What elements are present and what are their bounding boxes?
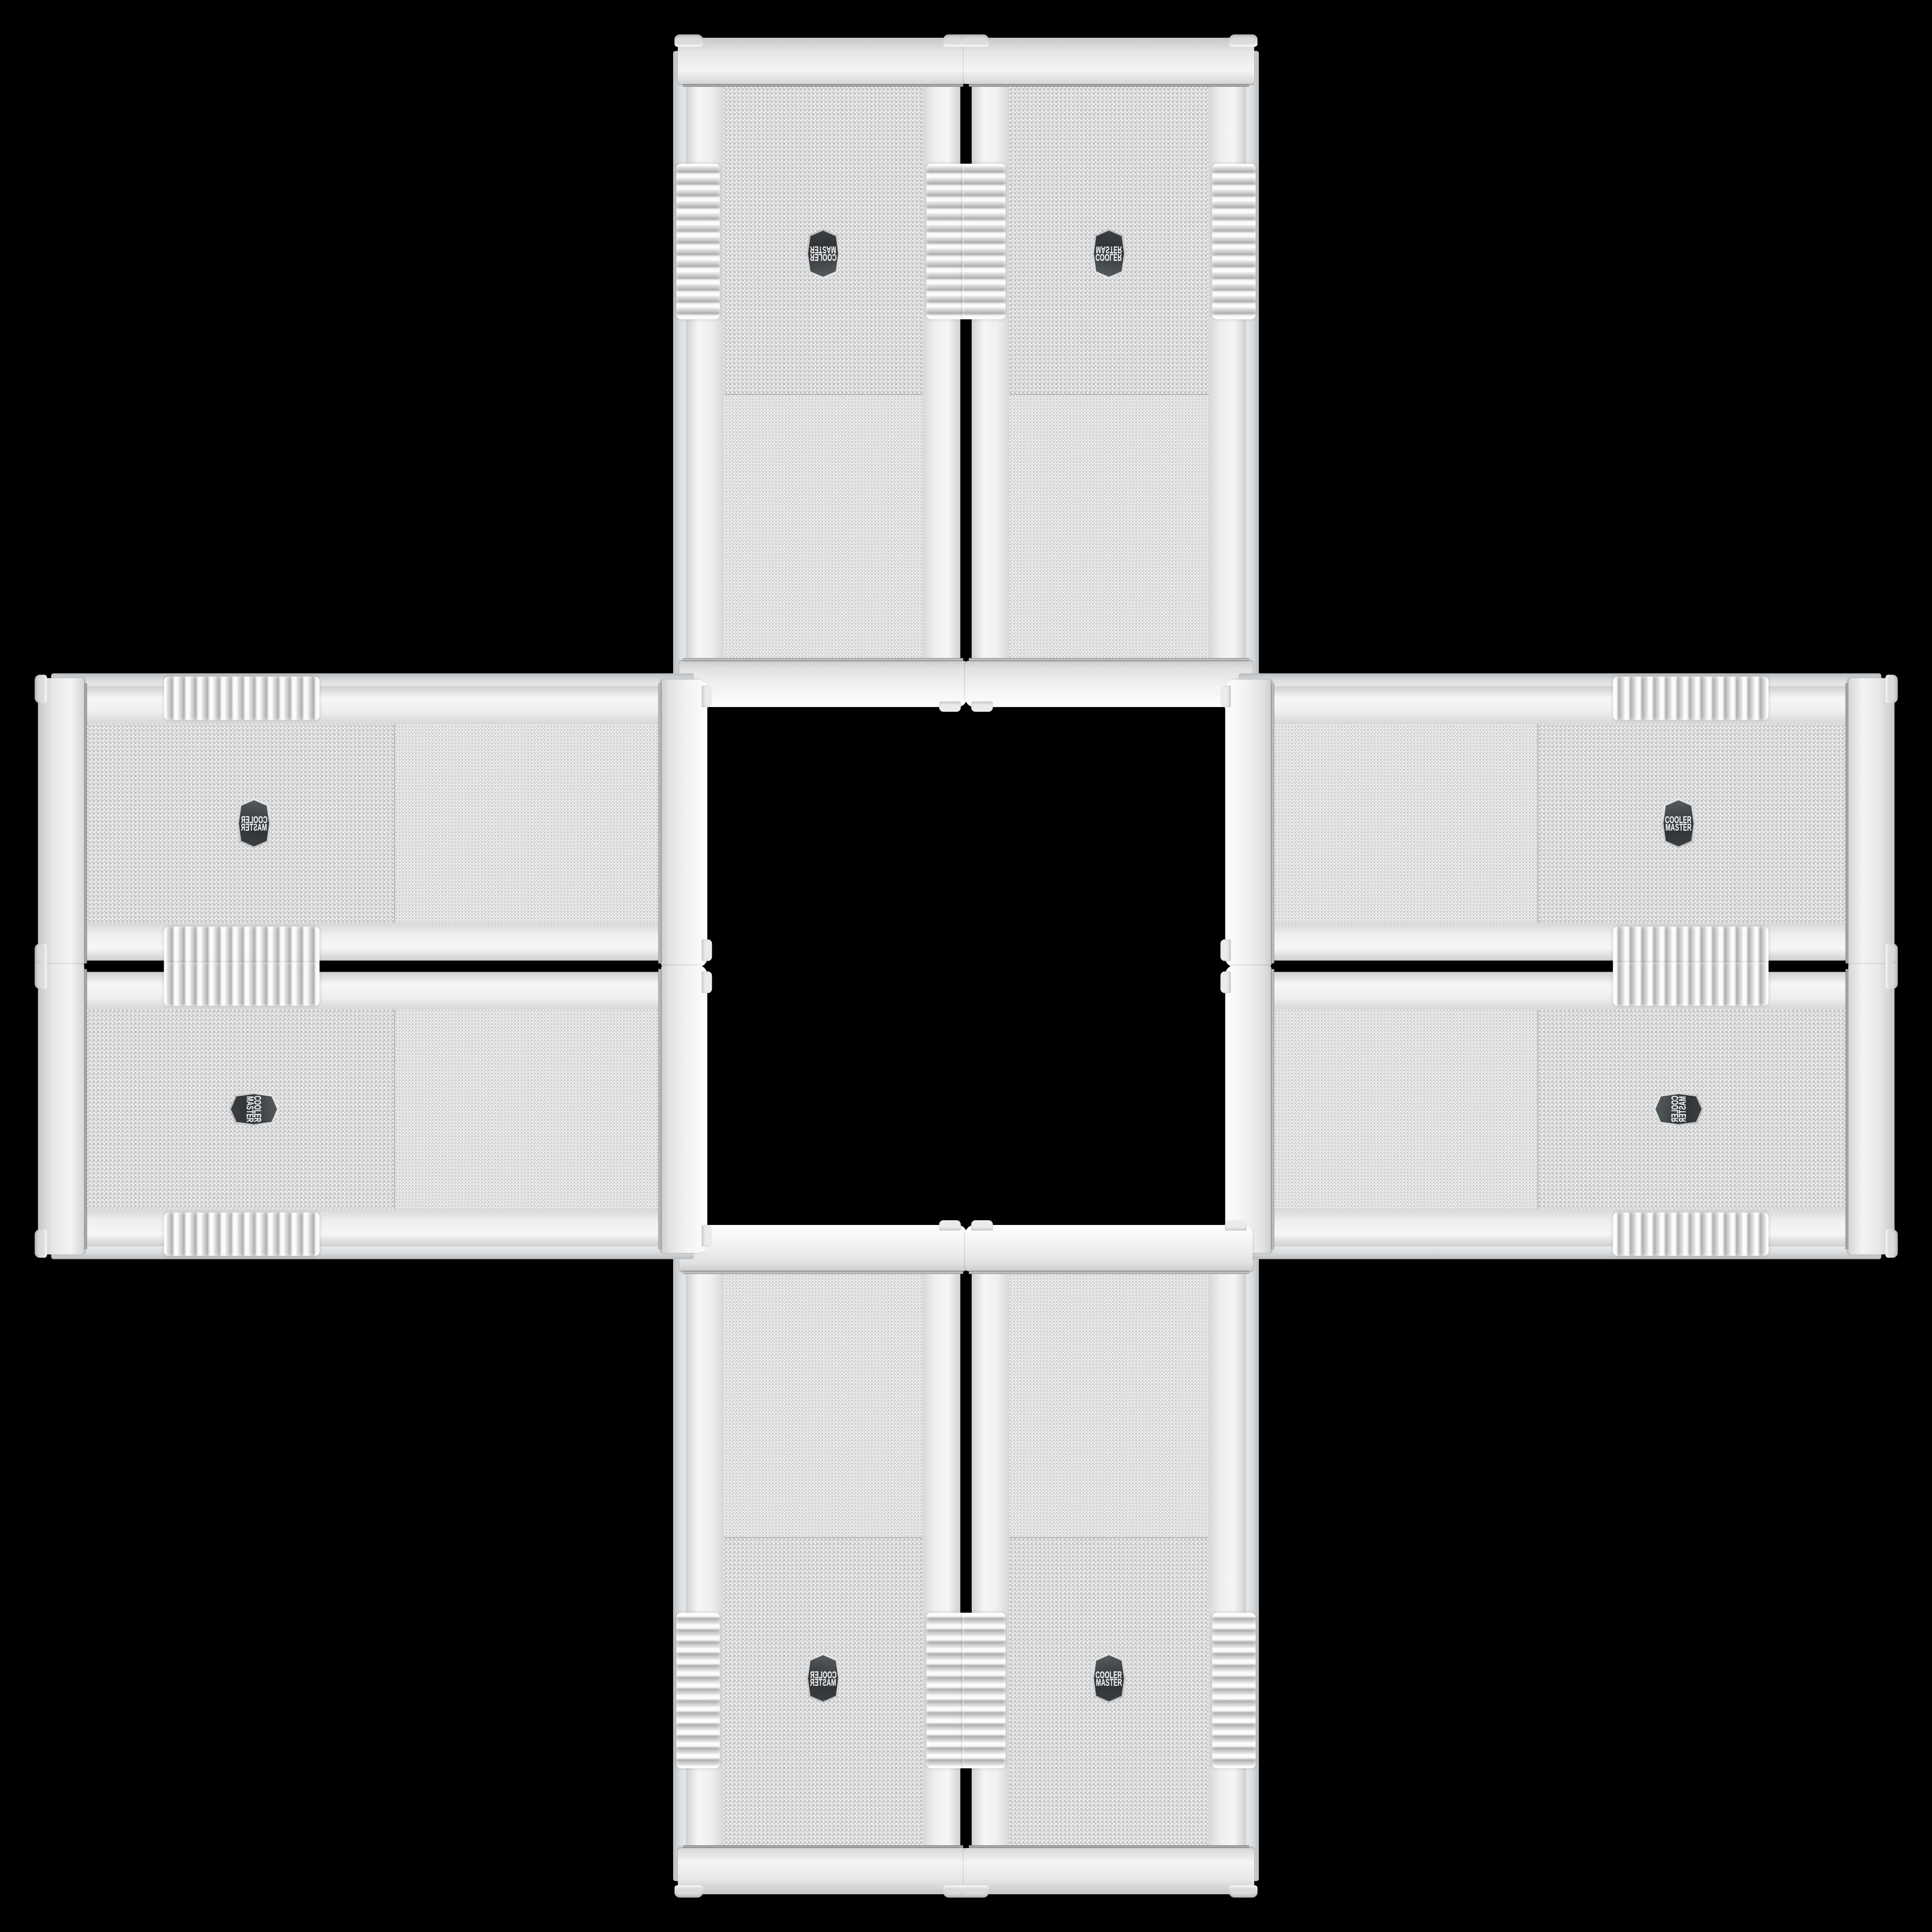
top-cover-tab (701, 685, 712, 707)
chrome-trim-top (658, 969, 661, 1249)
drive-bay-mesh-covers (724, 1274, 923, 1537)
chrome-trim-top (969, 658, 1249, 661)
base-foot (960, 34, 989, 47)
drive-bay-mesh-covers (395, 724, 658, 923)
side-left-top: COOLER MASTER (39, 682, 706, 965)
side-door-edge (1245, 51, 1259, 694)
badge-face: COOLER MASTER (808, 1655, 838, 1701)
side-grip-ribs-left (1613, 962, 1768, 1006)
drive-bay-mesh-covers (1274, 1009, 1537, 1208)
top-cover (679, 661, 967, 707)
tower-top-left: COOLER MASTER (682, 39, 965, 706)
chrome-trim-top (969, 1271, 1249, 1274)
base-foot (675, 1885, 703, 1898)
badge-brand-line2: MASTER (810, 244, 836, 256)
side-grip-ribs-right (1212, 1613, 1256, 1768)
pc-case-front-panel: COOLER MASTER (1226, 967, 1893, 1250)
side-right-bottom: COOLER MASTER (1226, 967, 1893, 1250)
side-grip-ribs-right (1212, 164, 1256, 319)
case-base-stand (964, 1848, 1254, 1894)
side-door-edge (673, 1238, 687, 1881)
case-base-stand (678, 38, 968, 84)
side-door-edge (1238, 1245, 1881, 1259)
chrome-trim-bottom (969, 83, 1249, 87)
case-base-stand (678, 1848, 968, 1894)
side-grip-ribs-left (962, 1613, 1006, 1768)
front-bezel (686, 87, 960, 658)
side-left-bottom: COOLER MASTER (39, 967, 706, 1250)
side-door-edge (1245, 1238, 1259, 1881)
base-foot (34, 675, 47, 703)
side-grip-ribs-right (676, 1613, 720, 1768)
top-cover-tab (1220, 971, 1231, 993)
base-foot (1885, 960, 1898, 989)
top-cover (965, 1225, 1253, 1271)
badge-brand-line2: MASTER (1676, 1096, 1688, 1122)
top-cover (679, 1225, 967, 1271)
pc-case-front-panel: COOLER MASTER (682, 39, 965, 706)
top-cover-tab (701, 1225, 712, 1247)
top-cover-tab (971, 1220, 993, 1231)
pc-case-front-panel: COOLER MASTER (1226, 682, 1893, 965)
badge-brand-line2: MASTER (241, 821, 266, 833)
chrome-trim-top (683, 658, 963, 661)
base-foot (1229, 1885, 1257, 1898)
badge-chrome-ring: COOLER MASTER (1092, 229, 1126, 279)
tower-bottom-right: COOLER MASTER (967, 1226, 1250, 1893)
badge-chrome-ring: COOLER MASTER (1661, 798, 1695, 848)
drive-bay-mesh-covers (1274, 724, 1537, 923)
badge-chrome-ring: COOLER MASTER (237, 798, 271, 848)
case-base-stand (964, 38, 1254, 84)
top-cover (661, 965, 707, 1253)
badge-chrome-ring: COOLER MASTER (806, 229, 840, 279)
front-bezel (972, 87, 1246, 658)
side-door-edge (51, 1245, 694, 1259)
badge-face: COOLER MASTER (239, 800, 269, 846)
pc-case-front-panel: COOLER MASTER (682, 1226, 965, 1893)
badge-brand-line2: MASTER (1096, 1676, 1122, 1688)
top-cover-tab (939, 1220, 961, 1231)
cooler-master-badge: COOLER MASTER (806, 229, 840, 279)
top-cover-tab (1220, 939, 1231, 961)
cooler-master-badge: COOLER MASTER (1661, 798, 1695, 848)
case-base-stand (1848, 678, 1894, 968)
top-cover-tab (1220, 685, 1231, 707)
side-grip-ribs-right (164, 1212, 319, 1256)
front-bezel (87, 972, 658, 1246)
badge-brand-line2: MASTER (1096, 244, 1122, 256)
badge-brand-line2: MASTER (244, 1096, 256, 1122)
top-cover-tab (971, 701, 993, 712)
top-cover (1225, 965, 1271, 1253)
badge-brand-line2: MASTER (810, 1676, 836, 1688)
product-collage-stage: COOLER MASTER (0, 0, 1932, 1932)
side-grip-ribs-right (164, 676, 319, 720)
top-cover-tab (701, 971, 712, 993)
side-door-edge (673, 51, 687, 694)
pc-case-front-panel: COOLER MASTER (967, 39, 1250, 706)
badge-face: COOLER MASTER (1655, 1094, 1701, 1124)
cooler-master-badge: COOLER MASTER (806, 1653, 840, 1703)
badge-face: COOLER MASTER (231, 1094, 277, 1124)
top-cover-tab (1225, 1220, 1247, 1231)
top-cover (661, 679, 707, 967)
badge-face: COOLER MASTER (1094, 1655, 1124, 1701)
top-cover (965, 661, 1253, 707)
top-cover-tab (939, 701, 961, 712)
badge-brand-line2: MASTER (1665, 821, 1691, 833)
badge-face: COOLER MASTER (1094, 231, 1124, 277)
base-foot (675, 34, 703, 47)
pc-case-front-panel: COOLER MASTER (39, 967, 706, 1250)
cooler-master-badge: COOLER MASTER (1092, 229, 1126, 279)
pc-case-front-panel: COOLER MASTER (967, 1226, 1250, 1893)
base-foot (960, 1885, 989, 1898)
case-base-stand (38, 964, 84, 1254)
chrome-trim-top (658, 683, 661, 963)
base-foot (1885, 675, 1898, 703)
badge-chrome-ring: COOLER MASTER (1653, 1092, 1703, 1126)
side-grip-ribs-right (1613, 676, 1768, 720)
top-cover (1225, 679, 1271, 967)
base-foot (1885, 1229, 1898, 1257)
side-grip-ribs-left (164, 962, 319, 1006)
front-bezel (686, 1274, 960, 1845)
top-cover-tab (701, 939, 712, 961)
cooler-master-badge: COOLER MASTER (1092, 1653, 1126, 1703)
chrome-trim-bottom (683, 83, 963, 87)
base-foot (34, 1229, 47, 1257)
drive-bay-mesh-covers (395, 1009, 658, 1208)
cooler-master-badge: COOLER MASTER (229, 1092, 279, 1126)
drive-bay-mesh-covers (1009, 395, 1208, 658)
tower-bottom-left: COOLER MASTER (682, 1226, 965, 1893)
badge-face: COOLER MASTER (1663, 800, 1693, 846)
badge-chrome-ring: COOLER MASTER (229, 1092, 279, 1126)
side-grip-ribs-right (676, 164, 720, 319)
cooler-master-badge: COOLER MASTER (237, 798, 271, 848)
side-grip-ribs-left (962, 164, 1006, 319)
side-grip-ribs-right (1613, 1212, 1768, 1256)
base-foot (1229, 34, 1257, 47)
pc-case-front-panel: COOLER MASTER (39, 682, 706, 965)
case-base-stand (38, 678, 84, 968)
badge-chrome-ring: COOLER MASTER (806, 1653, 840, 1703)
side-right-top: COOLER MASTER (1226, 682, 1893, 965)
chrome-trim-top (1271, 683, 1274, 963)
front-bezel (87, 686, 658, 960)
drive-bay-mesh-covers (1009, 1274, 1208, 1537)
badge-chrome-ring: COOLER MASTER (1092, 1653, 1126, 1703)
chrome-trim-top (1271, 969, 1274, 1249)
base-foot (34, 960, 47, 989)
front-bezel (972, 1274, 1246, 1845)
front-bezel (1274, 972, 1845, 1246)
side-door-edge (1238, 673, 1881, 687)
case-base-stand (1848, 964, 1894, 1254)
badge-face: COOLER MASTER (808, 231, 838, 277)
cooler-master-badge: COOLER MASTER (1653, 1092, 1703, 1126)
tower-top-right: COOLER MASTER (967, 39, 1250, 706)
side-door-edge (51, 673, 694, 687)
front-bezel (1274, 686, 1845, 960)
chrome-trim-top (683, 1271, 963, 1274)
drive-bay-mesh-covers (724, 395, 923, 658)
